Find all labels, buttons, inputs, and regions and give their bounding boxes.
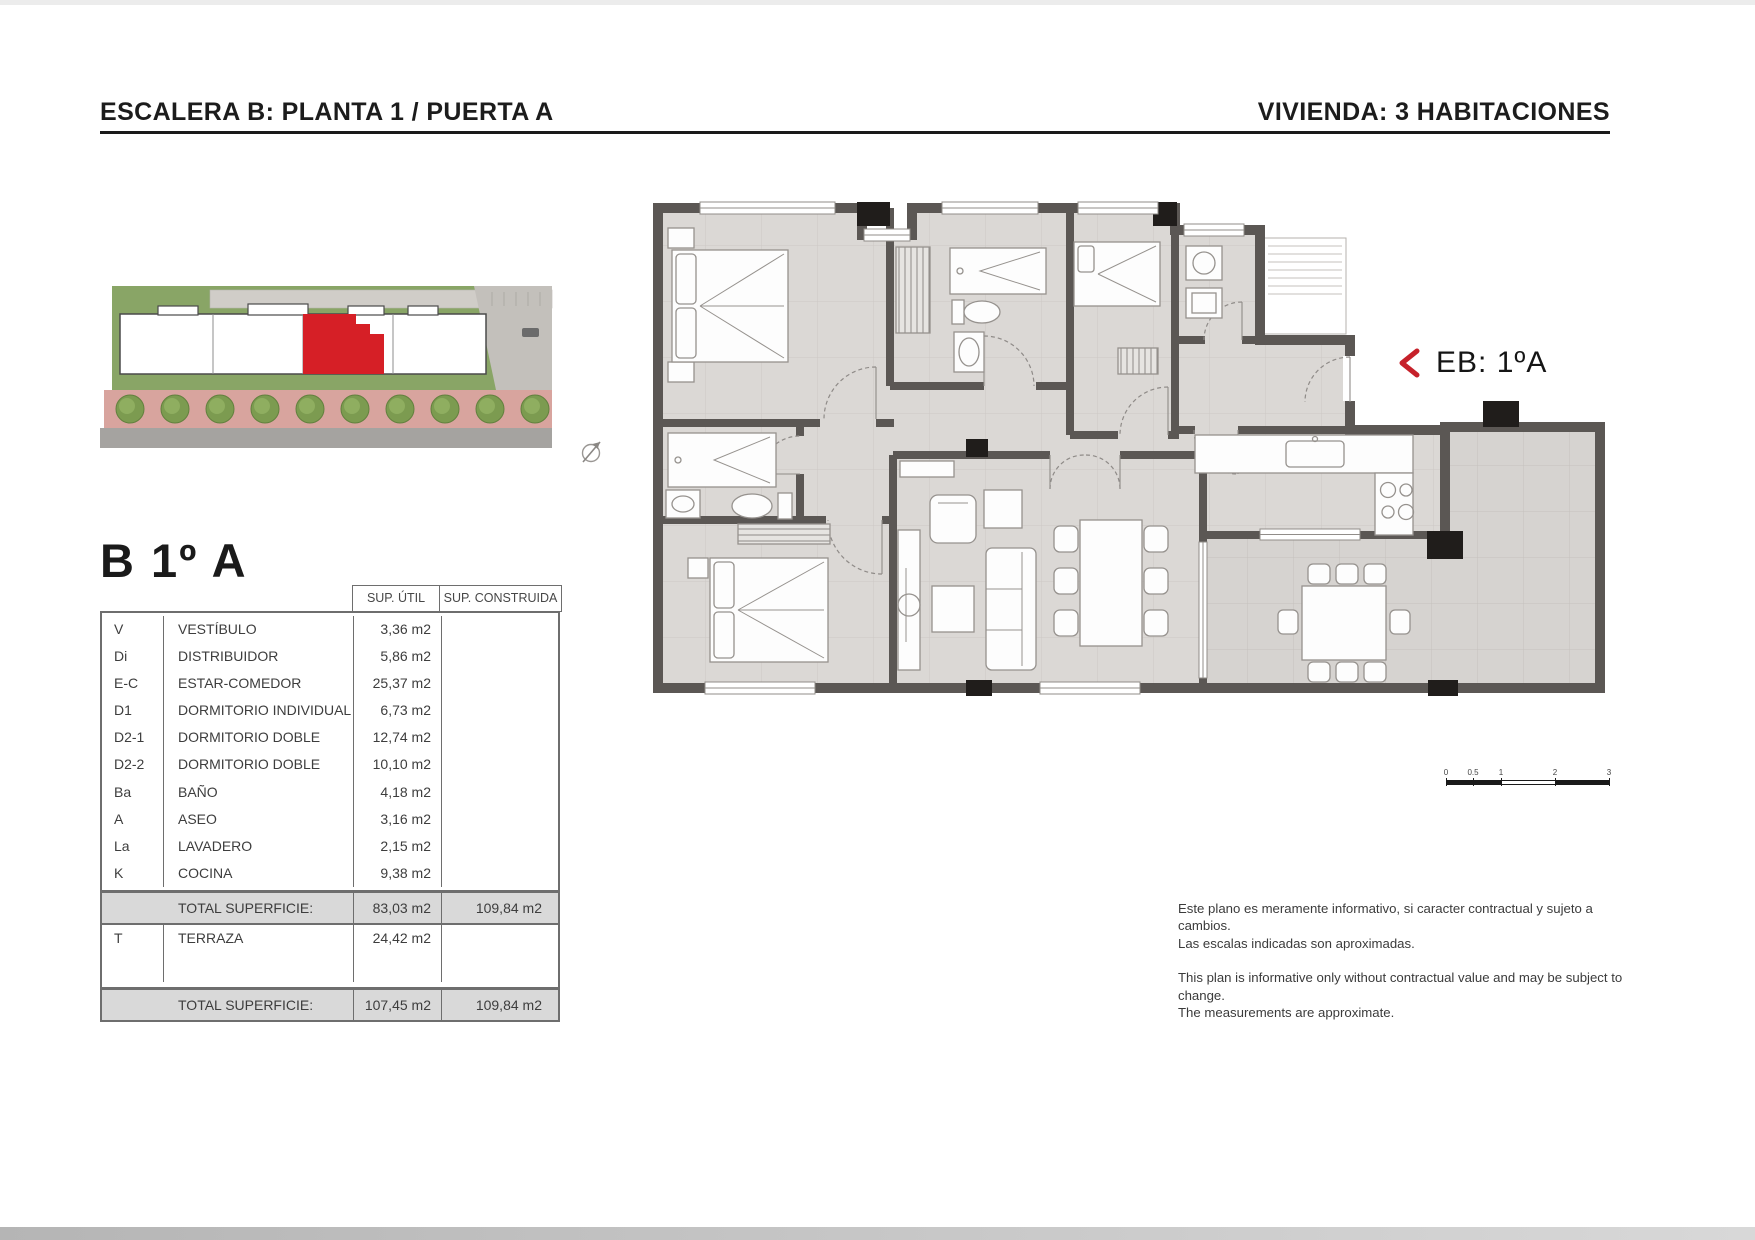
entrance-label-text: EB: 1ºA (1436, 346, 1547, 380)
disclaimer-en-line2: The measurements are approximate. (1178, 1004, 1638, 1021)
area-row: E-CESTAR-COMEDOR25,37 m2 (102, 670, 558, 697)
total-general-row: TOTAL SUPERFICIE: 107,45 m2 109,84 m2 (100, 988, 560, 1022)
sheet-title-left: ESCALERA B: PLANTA 1 / PUERTA A (100, 98, 554, 127)
area-row: DiDISTRIBUIDOR5,86 m2 (102, 643, 558, 670)
area-row: LaLAVADERO2,15 m2 (102, 833, 558, 860)
area-row: D2-1DORMITORIO DOBLE12,74 m2 (102, 724, 558, 751)
disclaimer-es-line1: Este plano es meramente informativo, si … (1178, 900, 1638, 935)
disclaimer: Este plano es meramente informativo, si … (1178, 900, 1638, 1022)
terraza-box: T TERRAZA 24,42 m2 (100, 923, 560, 989)
area-row: D2-2DORMITORIO DOBLE10,10 m2 (102, 751, 558, 778)
sheet-title-right: VIVIENDA: 3 HABITACIONES (1258, 98, 1610, 127)
disclaimer-en-line1: This plan is informative only without co… (1178, 969, 1638, 1004)
site-road (100, 428, 552, 448)
header-rule (100, 131, 1610, 134)
site-car (522, 328, 539, 337)
column-header-construida: SUP. CONSTRUIDA (440, 586, 561, 611)
plan-sheet: ESCALERA B: PLANTA 1 / PUERTA A VIVIENDA… (0, 0, 1755, 1240)
page-bottom-edge (0, 1227, 1755, 1240)
page-top-edge (0, 0, 1755, 5)
area-row: KCOCINA9,38 m2 (102, 860, 558, 887)
area-row: VVESTÍBULO3,36 m2 (102, 616, 558, 643)
areas-table: SUP. ÚTIL SUP. CONSTRUIDA VVESTÍBULO3,36… (100, 585, 560, 1022)
spacer-row (102, 953, 558, 982)
disclaimer-es-line2: Las escalas indicadas son aproximadas. (1178, 935, 1638, 952)
entrance-arrow-icon (1398, 348, 1420, 378)
total-interior-row: TOTAL SUPERFICIE: 83,03 m2 109,84 m2 (100, 891, 560, 925)
floor-plan (650, 190, 1610, 710)
stair-core (1264, 238, 1346, 334)
scale-bar: 0 0.5 1 2 3 (1446, 768, 1610, 790)
north-arrow-icon (576, 436, 606, 466)
entrance-marker: EB: 1ºA (1398, 346, 1547, 380)
areas-table-header: SUP. ÚTIL SUP. CONSTRUIDA (352, 585, 562, 612)
site-plan (98, 278, 568, 450)
area-row: AASEO3,16 m2 (102, 806, 558, 833)
area-row: T TERRAZA 24,42 m2 (102, 925, 558, 952)
unit-title: B 1º A (100, 533, 248, 588)
area-row: BaBAÑO4,18 m2 (102, 779, 558, 806)
site-plan-drawing (98, 278, 568, 450)
area-row: D1DORMITORIO INDIVIDUAL6,73 m2 (102, 697, 558, 724)
column-header-util: SUP. ÚTIL (353, 586, 440, 611)
rooms-box: VVESTÍBULO3,36 m2 DiDISTRIBUIDOR5,86 m2 … (100, 611, 560, 893)
